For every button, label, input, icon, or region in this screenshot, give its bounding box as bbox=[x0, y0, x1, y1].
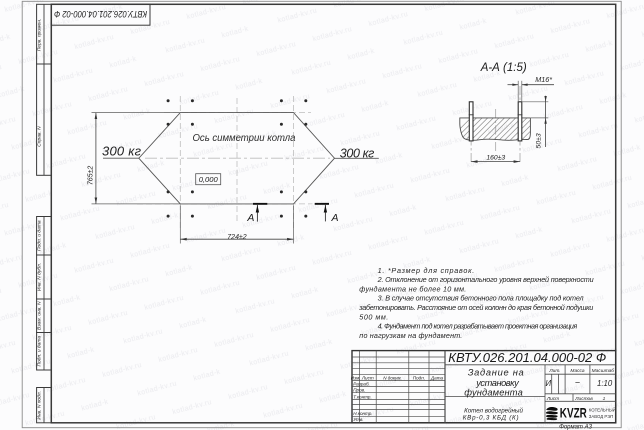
svg-text:50±3: 50±3 bbox=[535, 133, 542, 148]
svg-text:KVZR: KVZR bbox=[560, 405, 587, 421]
svg-text:Ось симметрии котла: Ось симметрии котла bbox=[193, 133, 296, 144]
svg-text:Лит.: Лит. bbox=[548, 368, 560, 374]
svg-text:Пров.: Пров. bbox=[353, 388, 365, 393]
svg-text:Инв. N подл.: Инв. N подл. bbox=[37, 391, 43, 420]
svg-text:фундамента: фундамента bbox=[464, 387, 523, 397]
svg-text:3. В случае отсутствия бетонно: 3. В случае отсутствия бетонного пола пл… bbox=[378, 294, 584, 303]
svg-text:Задание на: Задание на bbox=[468, 367, 524, 377]
svg-text:300 кг: 300 кг bbox=[102, 144, 142, 159]
svg-text:А: А bbox=[246, 212, 254, 224]
svg-text:забетонировать. Расстояние от: забетонировать. Расстояние от осей колон… bbox=[358, 303, 593, 312]
svg-text:160±3: 160±3 bbox=[486, 155, 505, 162]
svg-text:Подп.: Подп. bbox=[413, 375, 425, 380]
svg-text:ЗАВОД РЭП: ЗАВОД РЭП bbox=[589, 414, 614, 419]
svg-text:Инв. N дубл.: Инв. N дубл. bbox=[37, 263, 43, 291]
svg-text:М16*: М16* bbox=[535, 75, 552, 84]
svg-text:Подп. и дата: Подп. и дата bbox=[37, 336, 43, 367]
svg-text:1:10: 1:10 bbox=[597, 379, 613, 388]
svg-text:по нагрузкам на фундамент.: по нагрузкам на фундамент. bbox=[359, 331, 462, 340]
svg-text:Дата: Дата bbox=[430, 375, 444, 380]
svg-text:0,000: 0,000 bbox=[199, 175, 219, 184]
svg-text:2. Отклонение от горизонтально: 2. Отклонение от горизонтального уровня … bbox=[377, 275, 594, 284]
svg-text:Подп. и дата: Подп. и дата bbox=[37, 220, 43, 251]
svg-text:КВр-0,3 КБД (К): КВр-0,3 КБД (К) bbox=[463, 414, 520, 421]
svg-text:Изм.: Изм. bbox=[351, 375, 361, 380]
svg-text:КВТУ.026.201.04.000-02 Ф: КВТУ.026.201.04.000-02 Ф bbox=[448, 350, 606, 365]
svg-text:Лист: Лист bbox=[361, 375, 374, 380]
svg-text:КОТЕЛЬНЫЙ: КОТЕЛЬНЫЙ bbox=[589, 408, 616, 413]
svg-text:А-А (1:5): А-А (1:5) bbox=[480, 62, 527, 74]
svg-text:Масштаб: Масштаб bbox=[592, 368, 615, 374]
svg-text:А: А bbox=[330, 212, 338, 224]
svg-text:Справ. N: Справ. N bbox=[37, 126, 43, 147]
svg-text:Лист: Лист bbox=[546, 396, 559, 402]
svg-text:Формат А3: Формат А3 bbox=[559, 425, 592, 430]
svg-text:1. *Размер для справок.: 1. *Размер для справок. bbox=[378, 266, 475, 275]
svg-text:–: – bbox=[574, 378, 580, 387]
svg-text:Н.контр.: Н.контр. bbox=[353, 411, 372, 416]
svg-text:Масса: Масса bbox=[570, 368, 585, 374]
svg-text:1: 1 bbox=[603, 396, 606, 402]
svg-text:КВТУ.026.201.04.000-02 Ф: КВТУ.026.201.04.000-02 Ф bbox=[54, 8, 147, 19]
svg-text:N докум.: N докум. bbox=[383, 375, 402, 380]
svg-text:Листов: Листов bbox=[574, 396, 593, 402]
svg-text:4. Фундамент под котел разраба: 4. Фундамент под котел разрабатывает про… bbox=[378, 322, 578, 331]
svg-text:фундамента не более 10 мм.: фундамента не более 10 мм. bbox=[359, 284, 466, 293]
svg-text:Взам. инв. N: Взам. инв. N bbox=[37, 301, 43, 330]
svg-text:724±2: 724±2 bbox=[227, 234, 247, 241]
svg-text:Разраб.: Разраб. bbox=[353, 381, 370, 386]
svg-text:500 мм.: 500 мм. bbox=[359, 312, 388, 321]
svg-text:Перв. примен.: Перв. примен. bbox=[37, 19, 43, 52]
svg-text:765±2: 765±2 bbox=[88, 166, 95, 186]
svg-text:И: И bbox=[546, 379, 552, 388]
svg-text:Утв.: Утв. bbox=[353, 417, 363, 422]
svg-text:Т.контр.: Т.контр. bbox=[353, 394, 372, 399]
svg-text:Котел водогрейный: Котел водогрейный bbox=[464, 407, 523, 414]
